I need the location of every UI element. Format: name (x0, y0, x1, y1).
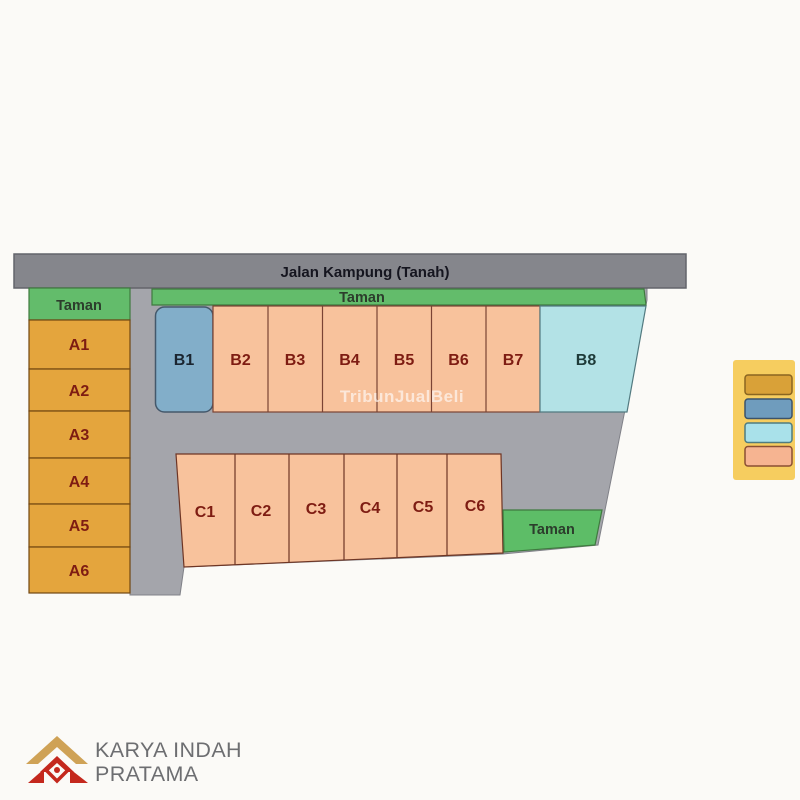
road-jalan-kampung: Jalan Kampung (Tanah) (14, 254, 686, 288)
lot-c3-label: C3 (306, 501, 327, 518)
park-left-label: Taman (56, 298, 102, 314)
lot-c5-label: C5 (413, 499, 434, 516)
company-logo: KARYA INDAH PRATAMA (26, 736, 242, 786)
legend-swatch-orange (745, 375, 792, 395)
lot-b7-label: B7 (503, 352, 524, 369)
lots-c-block (176, 454, 503, 567)
lot-a1-label: A1 (69, 337, 90, 354)
lot-b3-label: B3 (285, 352, 306, 369)
park-left: Taman (29, 288, 130, 320)
lot-a2-label: A2 (69, 383, 90, 400)
company-name-line1: KARYA INDAH (95, 738, 242, 762)
park-top-label: Taman (339, 290, 385, 306)
legend-swatch-peach (745, 447, 792, 467)
lot-b1-label: B1 (174, 352, 195, 369)
lot-a6-label: A6 (69, 563, 90, 580)
park-bottom-right-label: Taman (529, 522, 575, 538)
lot-b6-label: B6 (448, 352, 469, 369)
park-top: Taman (152, 289, 646, 306)
watermark-text: TribunJualBeli (340, 387, 464, 406)
lot-b8-label: B8 (576, 352, 597, 369)
lot-c1-label: C1 (195, 504, 216, 521)
lot-a3-label: A3 (69, 427, 90, 444)
lot-a5-label: A5 (69, 518, 90, 535)
lot-b5-label: B5 (394, 352, 415, 369)
legend-swatch-blue (745, 399, 792, 419)
site-plan-flyer: Jalan Kampung (Tanah) Taman A1 A2 A3 A4 … (0, 0, 800, 800)
legend (733, 360, 795, 480)
lot-c4-label: C4 (360, 500, 381, 517)
lot-c2-label: C2 (251, 503, 272, 520)
park-bottom-right: Taman (503, 510, 602, 552)
logo-roof-icon (26, 736, 88, 783)
lot-b2-label: B2 (230, 352, 251, 369)
lots-a-block (29, 320, 130, 593)
lot-c6-label: C6 (465, 498, 486, 515)
lot-b4-label: B4 (339, 352, 360, 369)
road-label: Jalan Kampung (Tanah) (281, 264, 450, 281)
lot-a4-label: A4 (69, 474, 90, 491)
legend-swatch-cyan (745, 423, 792, 443)
company-name-line2: PRATAMA (95, 762, 199, 786)
